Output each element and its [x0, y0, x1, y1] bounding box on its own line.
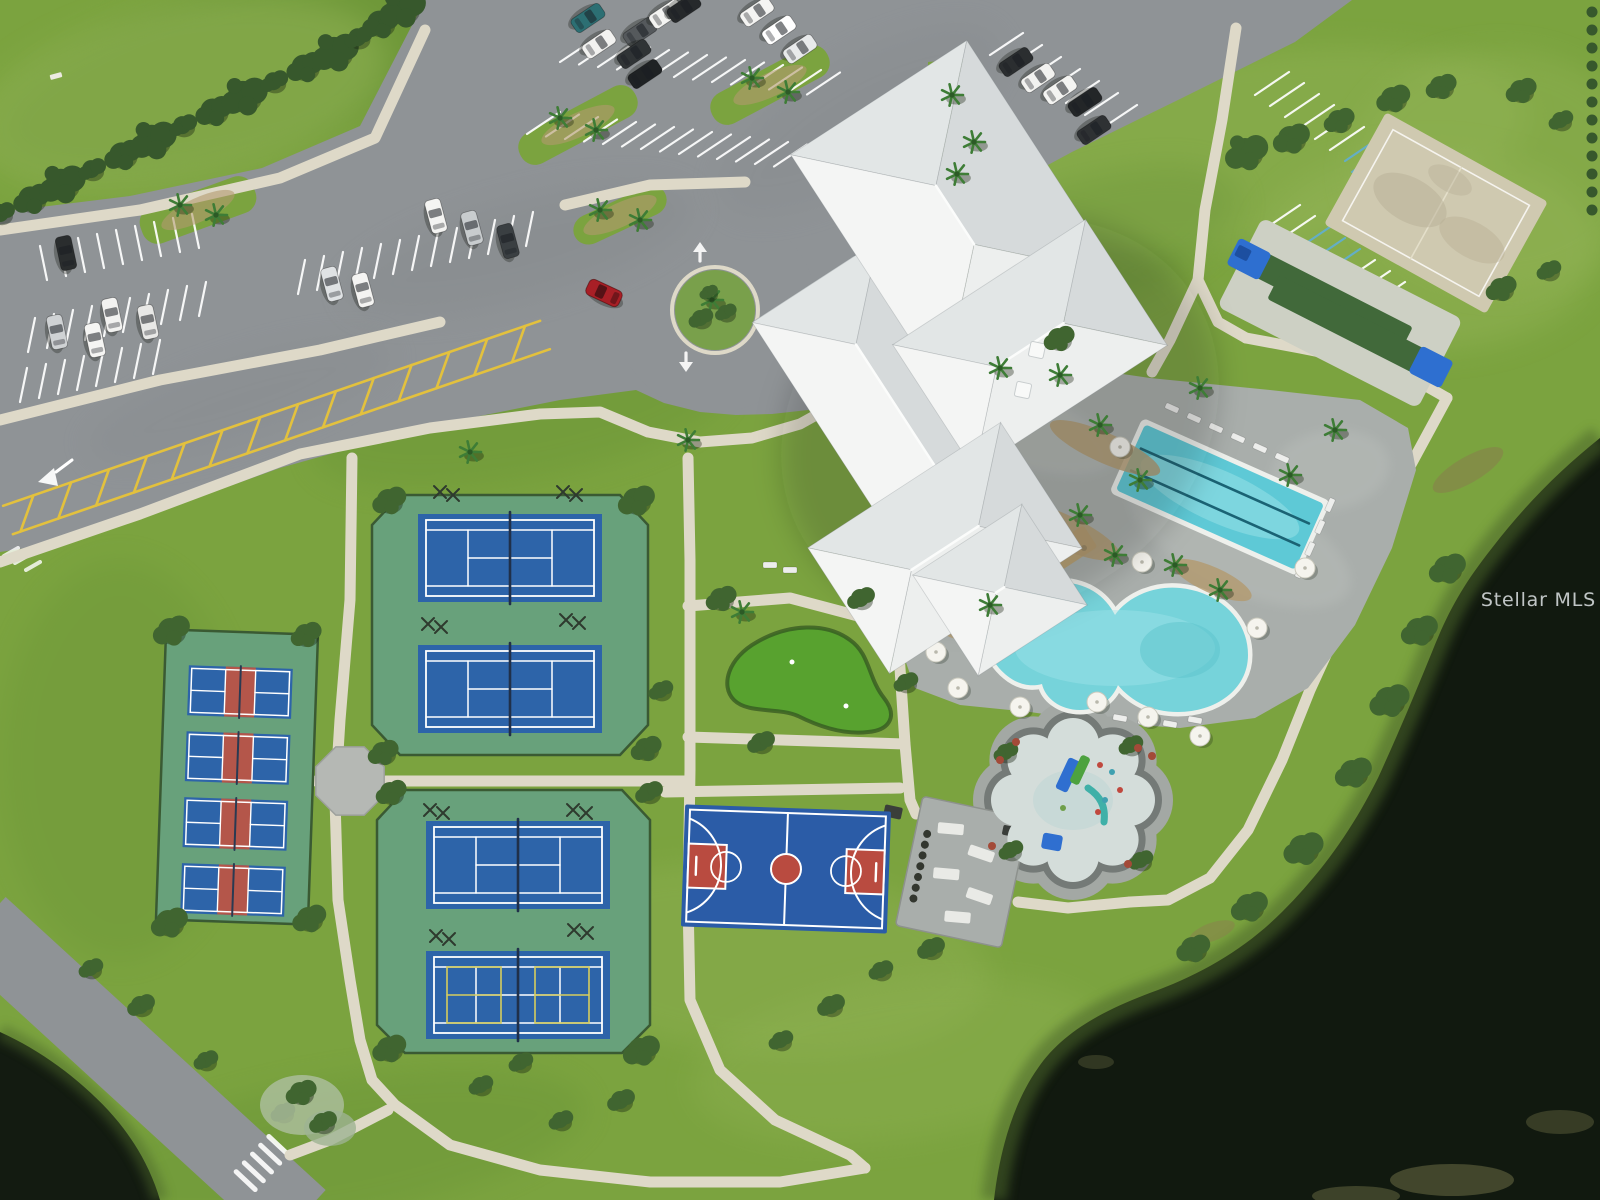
- basketball-court: [681, 804, 891, 933]
- pickleball-court: [180, 862, 286, 918]
- pickleball-court: [182, 796, 288, 852]
- pickleball-court: [185, 730, 291, 786]
- tennis-court: [418, 512, 602, 604]
- aerial-photo: Stellar MLS: [0, 0, 1600, 1200]
- pickleball-court: [187, 664, 293, 720]
- watermark: Stellar MLS: [1481, 589, 1596, 611]
- tennis-court: [426, 819, 610, 911]
- tennis-court: [418, 643, 602, 735]
- scene-canvas: Stellar MLS: [0, 0, 1600, 1200]
- tennis-court: [426, 949, 610, 1041]
- pickleball-courts: [156, 629, 318, 924]
